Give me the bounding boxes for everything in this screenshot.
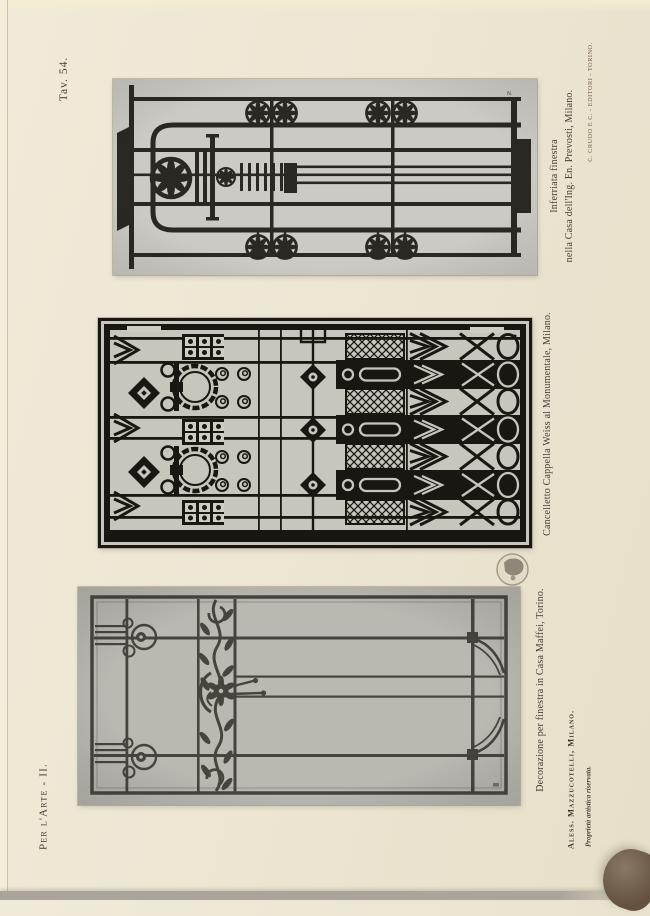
page-left-edge (0, 0, 8, 900)
corner-thumb-shadow (595, 842, 650, 916)
figure-cancelletto-photo (98, 318, 532, 548)
decorazione-ironwork-art (78, 587, 520, 805)
rights-notice: Proprietà artistica riservata. (585, 757, 596, 857)
caption-decorazione: Decorazione per finestra in Casa Maffei,… (535, 585, 549, 795)
inferriata-ironwork-art: N. (113, 79, 537, 275)
plate-number: Tav. 54. (58, 39, 74, 119)
figure-decorazione-photo (78, 587, 520, 805)
globe-stamp-icon (494, 551, 531, 588)
cancelletto-ironwork-art (98, 318, 532, 548)
figure-inferriata-photo: N. (113, 79, 537, 275)
scanned-plate-page: Tav. 54. Per l'Arte - II. (0, 0, 650, 900)
caption-cancelletto: Cancelletto Cappella Weiss al Monumental… (542, 312, 556, 536)
artist-credit: Aless. Mazzucotelli, Milano. (566, 705, 579, 855)
publisher-imprint: C. CRUDO E C. - EDITORI - TORINO. (587, 42, 597, 162)
scan-bed-strip (0, 891, 650, 900)
series-title: Per l'Arte - II. (38, 747, 55, 867)
caption-inferriata: Inferriata finestra nella Casa dell'Ing.… (547, 76, 579, 276)
page-top-edge (0, 0, 650, 12)
caption-inferriata-line1: Inferriata finestra (547, 76, 562, 276)
caption-inferriata-line2: nella Casa dell'Ing. En. Prevosti, Milan… (562, 76, 577, 276)
